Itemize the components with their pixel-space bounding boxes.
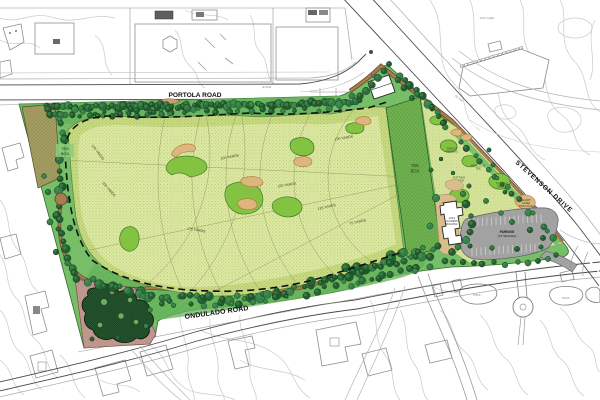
svg-text:TEE: TEE — [475, 166, 481, 170]
svg-text:PRACTICE: PRACTICE — [519, 204, 533, 208]
svg-text:BOX: BOX — [411, 169, 420, 174]
svg-text:TEE: TEE — [411, 163, 419, 168]
svg-text:BOX: BOX — [61, 151, 70, 156]
svg-text:POOL: POOL — [562, 296, 571, 300]
svg-text:(E) R/W: (E) R/W — [262, 85, 272, 89]
svg-text:BUILDING: BUILDING — [446, 223, 457, 226]
svg-text:PORTOLA ROAD: PORTOLA ROAD — [168, 92, 221, 99]
svg-text:(XX SPACES): (XX SPACES) — [498, 234, 517, 238]
svg-text:OAK GLEN: OAK GLEN — [480, 16, 494, 20]
svg-text:GREENS: GREENS — [446, 149, 458, 153]
